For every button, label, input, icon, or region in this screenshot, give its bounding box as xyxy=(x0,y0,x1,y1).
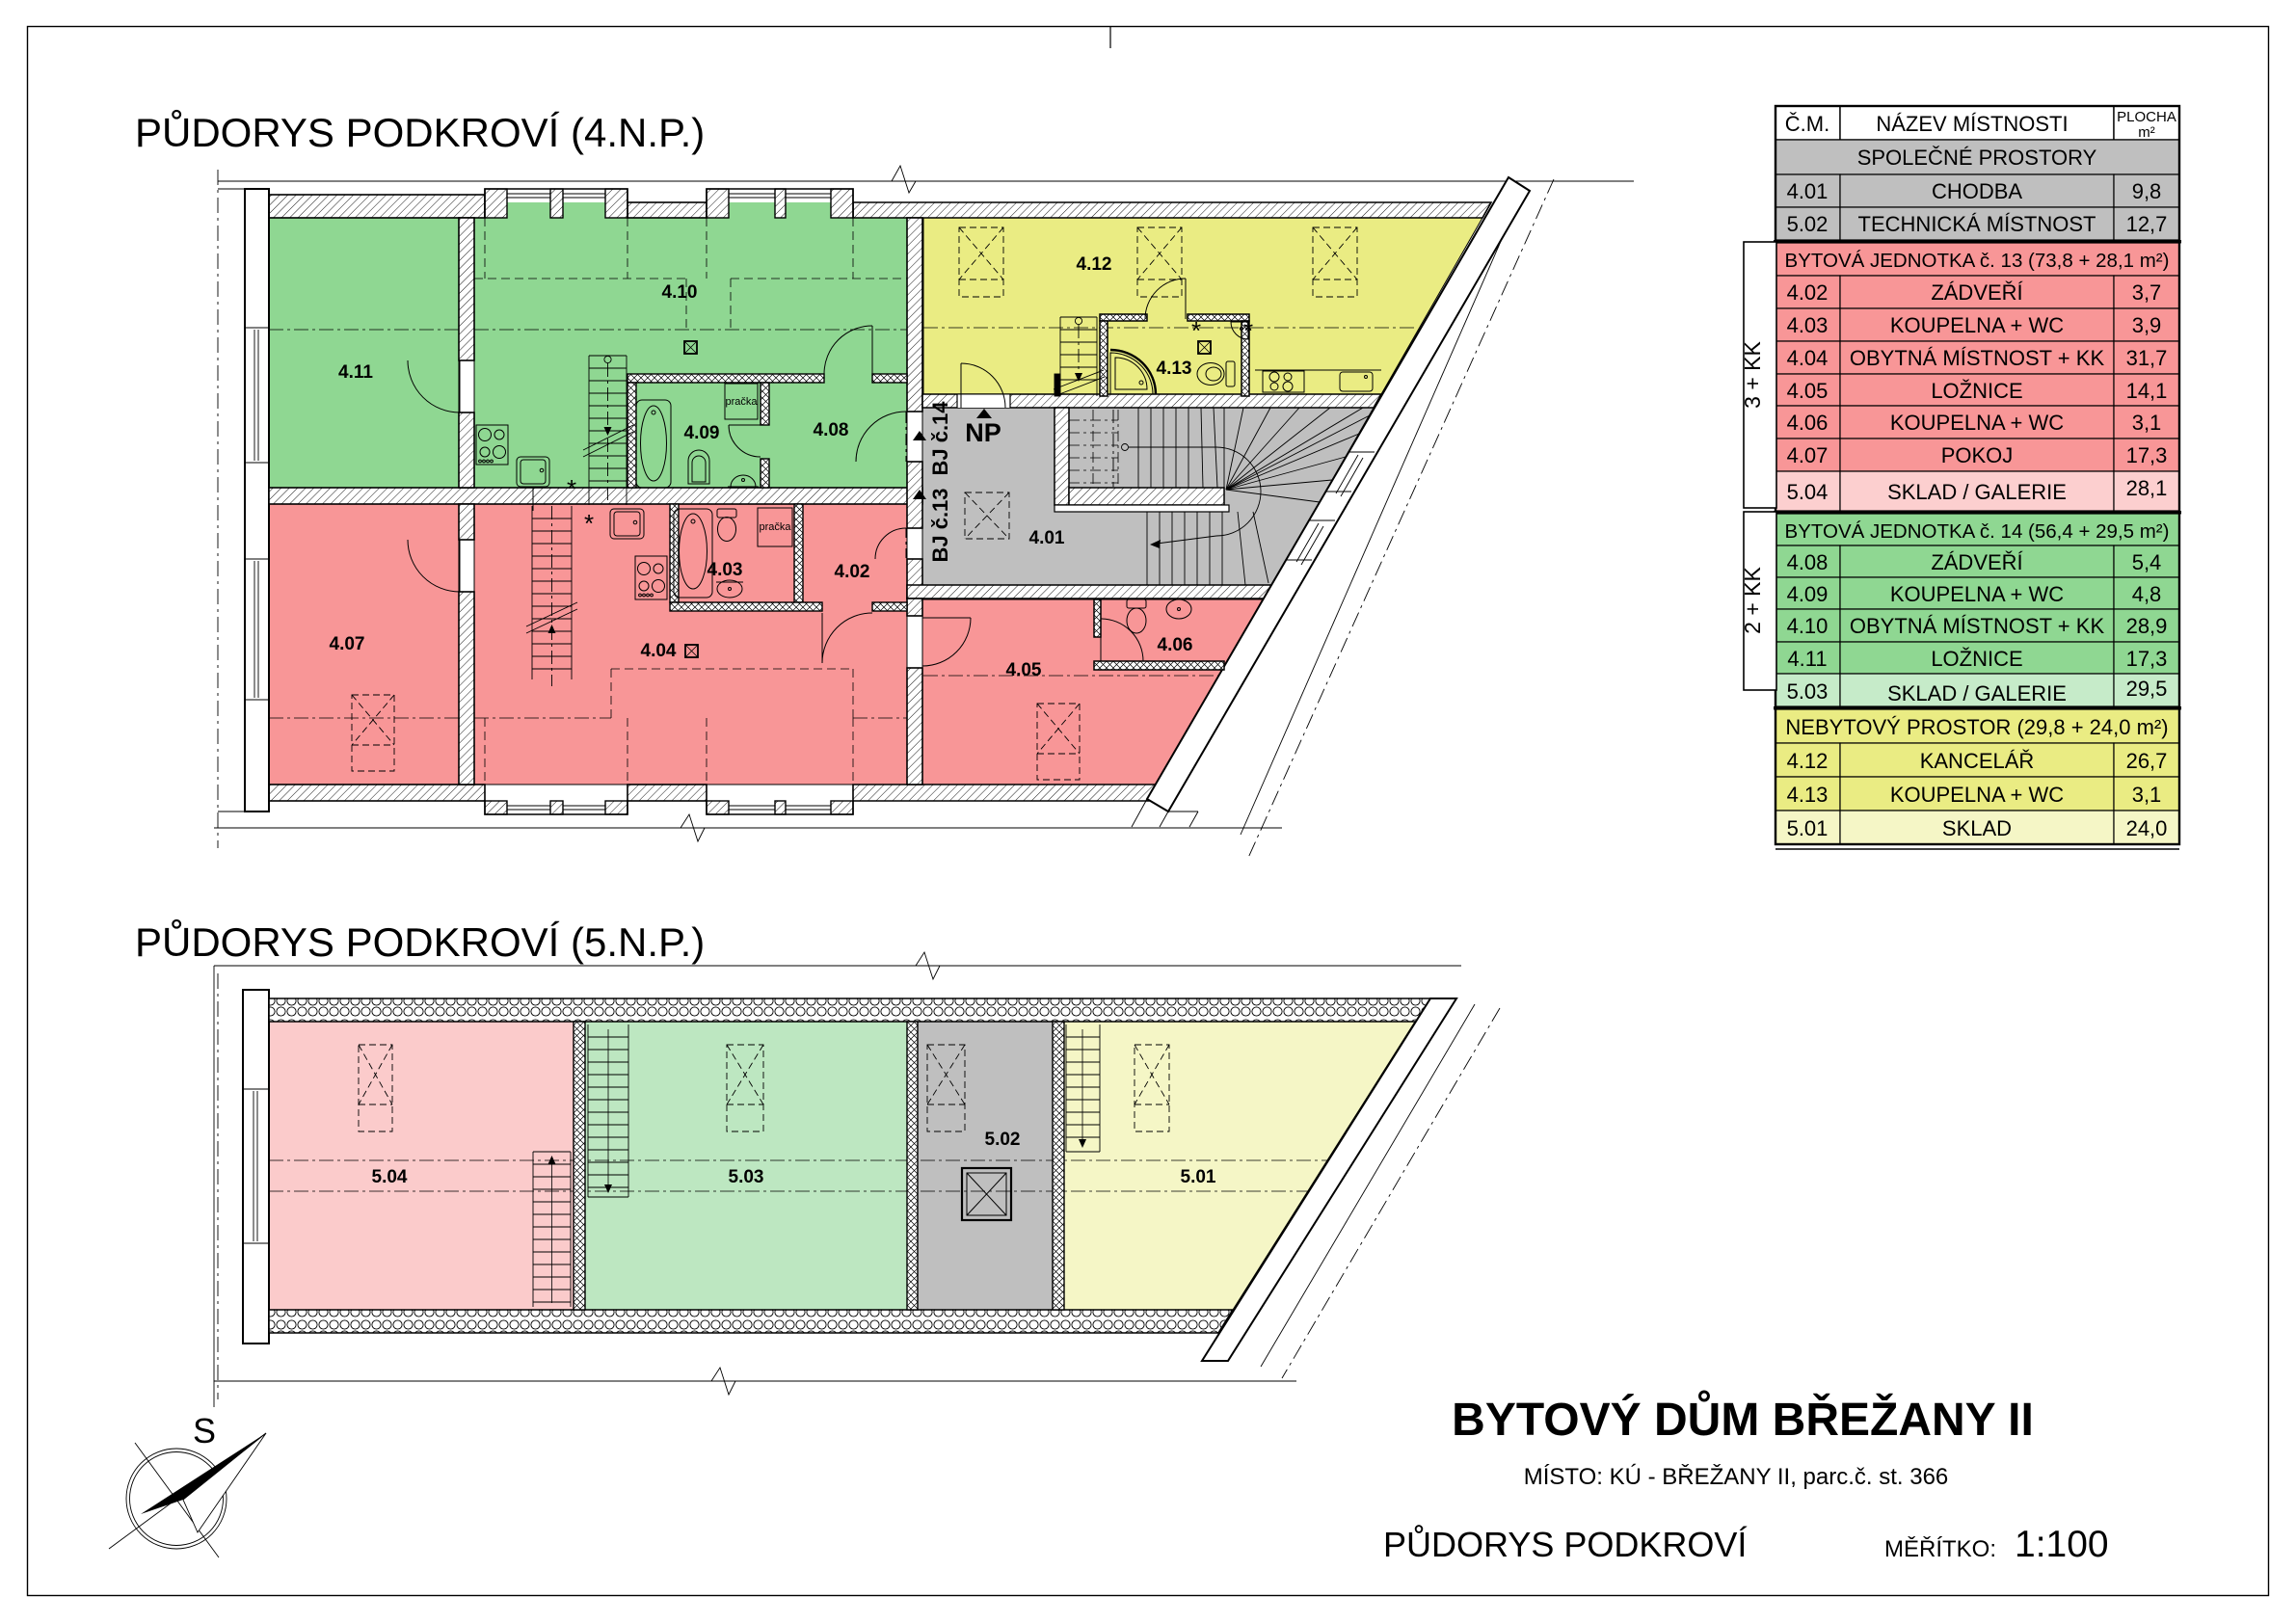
svg-text:PŮDORYS PODKROVÍ (5.N.P.): PŮDORYS PODKROVÍ (5.N.P.) xyxy=(135,918,705,965)
svg-text:4.07: 4.07 xyxy=(1787,443,1829,467)
svg-text:MĚŘÍTKO:: MĚŘÍTKO: xyxy=(1884,1536,1996,1562)
svg-text:4.11: 4.11 xyxy=(1787,647,1827,671)
svg-text:5.03: 5.03 xyxy=(729,1167,764,1187)
svg-text:*: * xyxy=(584,509,594,538)
svg-text:Č.M.: Č.M. xyxy=(1785,112,1829,136)
svg-text:BJ č.13: BJ č.13 xyxy=(928,488,952,562)
svg-text:4.01: 4.01 xyxy=(1787,179,1829,203)
svg-text:4.01: 4.01 xyxy=(1029,528,1065,548)
svg-text:3,7: 3,7 xyxy=(2132,280,2162,305)
svg-text:4.09: 4.09 xyxy=(1787,582,1829,606)
svg-text:5.03: 5.03 xyxy=(1787,679,1829,704)
svg-text:S: S xyxy=(193,1411,216,1450)
svg-text:ZÁDVEŘÍ: ZÁDVEŘÍ xyxy=(1931,280,2023,305)
svg-text:BYTOVÁ JEDNOTKA č. 14 (56,4 +: BYTOVÁ JEDNOTKA č. 14 (56,4 + 29,5 m²) xyxy=(1785,520,2170,543)
svg-text:PŮDORYS PODKROVÍ: PŮDORYS PODKROVÍ xyxy=(1383,1524,1747,1564)
svg-text:4.12: 4.12 xyxy=(1077,254,1112,275)
svg-text:CHODBA: CHODBA xyxy=(1932,179,2022,203)
svg-text:pračka: pračka xyxy=(759,521,791,533)
svg-text:m²: m² xyxy=(2138,124,2155,141)
svg-text:17,3: 17,3 xyxy=(2126,647,2168,671)
svg-text:4.10: 4.10 xyxy=(1787,614,1829,638)
svg-text:28,9: 28,9 xyxy=(2126,614,2168,638)
svg-text:OBYTNÁ MÍSTNOST + KK: OBYTNÁ MÍSTNOST + KK xyxy=(1850,346,2105,370)
svg-text:12,7: 12,7 xyxy=(2126,212,2168,236)
svg-text:*: * xyxy=(1191,316,1201,345)
svg-text:3 + KK: 3 + KK xyxy=(1740,340,1765,408)
svg-text:3,1: 3,1 xyxy=(2132,411,2162,435)
svg-text:4.06: 4.06 xyxy=(1787,411,1829,435)
svg-text:NP: NP xyxy=(965,418,1001,447)
svg-text:KOUPELNA + WC: KOUPELNA + WC xyxy=(1890,313,2064,337)
svg-text:4.03: 4.03 xyxy=(1787,313,1829,337)
svg-text:4.10: 4.10 xyxy=(662,282,698,303)
svg-text:POKOJ: POKOJ xyxy=(1941,443,2014,467)
svg-text:3,1: 3,1 xyxy=(2132,783,2162,807)
svg-text:5.04: 5.04 xyxy=(372,1167,408,1187)
svg-text:4.13: 4.13 xyxy=(1157,359,1192,379)
svg-text:4.02: 4.02 xyxy=(1787,280,1829,305)
svg-text:MÍSTO: KÚ - BŘEŽANY II, parc.č: MÍSTO: KÚ - BŘEŽANY II, parc.č. st. 366 xyxy=(1524,1464,1949,1490)
svg-text:pračka: pračka xyxy=(725,396,758,408)
svg-text:4.09: 4.09 xyxy=(684,423,720,443)
svg-text:14,1: 14,1 xyxy=(2126,379,2168,403)
svg-text:SPOLEČNÉ PROSTORY: SPOLEČNÉ PROSTORY xyxy=(1857,146,2097,170)
svg-text:5,4: 5,4 xyxy=(2132,550,2162,574)
svg-text:5.01: 5.01 xyxy=(1181,1167,1216,1187)
svg-text:3,9: 3,9 xyxy=(2132,313,2162,337)
svg-text:LOŽNICE: LOŽNICE xyxy=(1931,379,2022,403)
svg-text:4.04: 4.04 xyxy=(1787,346,1829,370)
svg-text:4.02: 4.02 xyxy=(835,562,870,582)
svg-text:26,7: 26,7 xyxy=(2126,749,2168,773)
svg-text:TECHNICKÁ MÍSTNOST: TECHNICKÁ MÍSTNOST xyxy=(1858,212,2096,236)
svg-text:4.13: 4.13 xyxy=(1787,783,1829,807)
svg-text:24,0: 24,0 xyxy=(2126,816,2168,840)
svg-text:4.07: 4.07 xyxy=(330,634,365,654)
svg-text:BYTOVÝ DŮM BŘEŽANY II: BYTOVÝ DŮM BŘEŽANY II xyxy=(1452,1389,2034,1446)
svg-text:5.04: 5.04 xyxy=(1787,480,1829,504)
svg-text:4.08: 4.08 xyxy=(814,420,849,440)
svg-text:4.12: 4.12 xyxy=(1787,749,1829,773)
svg-text:*: * xyxy=(567,474,576,503)
svg-text:SKLAD / GALERIE: SKLAD / GALERIE xyxy=(1887,681,2067,705)
svg-text:1:100: 1:100 xyxy=(2015,1524,2109,1565)
svg-text:SKLAD: SKLAD xyxy=(1942,816,2012,840)
svg-text:SKLAD / GALERIE: SKLAD / GALERIE xyxy=(1887,480,2067,504)
svg-text:4.03: 4.03 xyxy=(707,560,743,580)
svg-text:KOUPELNA + WC: KOUPELNA + WC xyxy=(1890,411,2064,435)
svg-text:BYTOVÁ JEDNOTKA č. 13 (73,8 +: BYTOVÁ JEDNOTKA č. 13 (73,8 + 28,1 m²) xyxy=(1785,250,2170,272)
svg-text:ZÁDVEŘÍ: ZÁDVEŘÍ xyxy=(1931,550,2023,574)
svg-text:KANCELÁŘ: KANCELÁŘ xyxy=(1920,749,2035,773)
svg-text:KOUPELNA + WC: KOUPELNA + WC xyxy=(1890,582,2064,606)
svg-text:9,8: 9,8 xyxy=(2132,179,2162,203)
svg-text:4.06: 4.06 xyxy=(1158,635,1193,655)
svg-text:31,7: 31,7 xyxy=(2126,346,2168,370)
svg-text:29,5: 29,5 xyxy=(2126,677,2168,701)
svg-text:17,3: 17,3 xyxy=(2126,443,2168,467)
svg-text:PŮDORYS PODKROVÍ (4.N.P.): PŮDORYS PODKROVÍ (4.N.P.) xyxy=(135,108,705,155)
svg-text:NÁZEV MÍSTNOSTI: NÁZEV MÍSTNOSTI xyxy=(1876,112,2068,136)
svg-text:4.05: 4.05 xyxy=(1006,660,1042,680)
svg-text:4.11: 4.11 xyxy=(338,362,373,383)
svg-text:4.04: 4.04 xyxy=(641,641,677,661)
svg-text:28,1: 28,1 xyxy=(2126,476,2168,500)
svg-text:4.05: 4.05 xyxy=(1787,379,1829,403)
svg-text:*: * xyxy=(1243,316,1253,345)
svg-text:NEBYTOVÝ PROSTOR (29,8 + 24,0: NEBYTOVÝ PROSTOR (29,8 + 24,0 m²) xyxy=(1785,715,2168,739)
svg-text:4,8: 4,8 xyxy=(2132,582,2162,606)
svg-text:PLOCHA: PLOCHA xyxy=(2117,109,2176,125)
svg-text:5.01: 5.01 xyxy=(1787,816,1829,840)
svg-text:KOUPELNA + WC: KOUPELNA + WC xyxy=(1890,783,2064,807)
svg-text:LOŽNICE: LOŽNICE xyxy=(1931,647,2022,671)
svg-text:OBYTNÁ MÍSTNOST + KK: OBYTNÁ MÍSTNOST + KK xyxy=(1850,614,2105,638)
svg-text:5.02: 5.02 xyxy=(985,1130,1021,1150)
svg-text:4.08: 4.08 xyxy=(1787,550,1829,574)
svg-text:2 + KK: 2 + KK xyxy=(1740,566,1765,633)
svg-text:BJ č.14: BJ č.14 xyxy=(928,401,952,476)
svg-text:5.02: 5.02 xyxy=(1787,212,1829,236)
